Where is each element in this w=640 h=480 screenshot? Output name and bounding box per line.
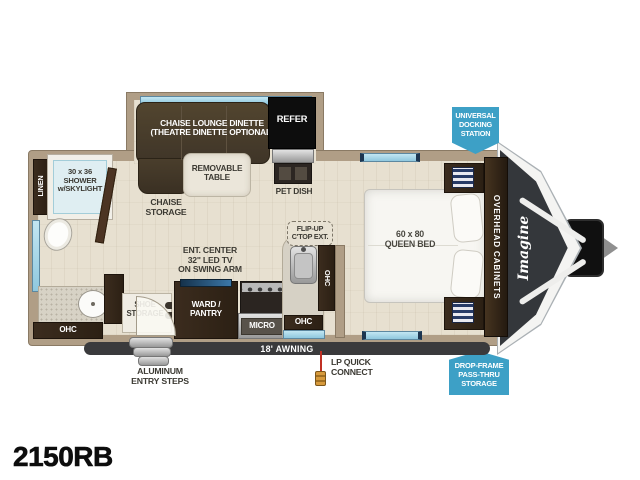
kitchen-ohc-vertical-wrap: OHC xyxy=(319,253,335,303)
ward-pantry-label: WARD / PANTRY xyxy=(174,300,238,319)
kitchen-window xyxy=(283,330,325,339)
bath-sink-drain xyxy=(91,302,95,306)
pillow-bottom xyxy=(450,249,485,300)
nightstand-top-decor xyxy=(452,167,474,188)
ent-center-label: ENT. CENTER 32" LED TV ON SWING ARM xyxy=(166,246,254,275)
removable-table-label: REMOVABLE TABLE xyxy=(183,164,251,183)
docking-station-label: UNIVERSAL DOCKING STATION xyxy=(452,112,499,138)
tv-on-swing-arm xyxy=(180,279,232,287)
range-knob-strip xyxy=(242,283,282,292)
overhead-cabinets-label: OVERHEAD CABINETS xyxy=(491,195,500,300)
pet-dish-label: PET DISH xyxy=(266,187,322,196)
nightstand-bottom-decor xyxy=(452,302,474,323)
shoe-latch-top xyxy=(165,302,172,309)
pet-dish-bowl-left xyxy=(279,167,291,180)
lp-quick-connect-label: LP QUICK CONNECT xyxy=(331,358,395,377)
kitchen-faucet xyxy=(301,247,306,252)
bedroom-partition-wall xyxy=(335,245,345,338)
bath-ohc-label: OHC xyxy=(33,326,103,335)
kitchen-ohc-vertical-label: OHC xyxy=(323,270,332,286)
micro-label: MICRO xyxy=(241,322,283,331)
lp-connect-icon xyxy=(315,371,326,386)
linen-label-wrap: LINEN xyxy=(33,165,49,207)
bedroom-window-top xyxy=(360,153,420,162)
kitchen-ohc-label: OHC xyxy=(284,318,323,327)
pet-dish-bowl-right xyxy=(295,167,307,180)
brand-logo: Imagine xyxy=(516,200,536,296)
entry-steps-label: ALUMINUM ENTRY STEPS xyxy=(114,367,206,386)
overhead-cabinets-wrap: OVERHEAD CABINETS xyxy=(488,167,504,327)
kitchen-sink-basin xyxy=(294,253,313,279)
chaise-storage-label: CHAISE STORAGE xyxy=(130,198,202,217)
dropframe-storage-label: DROP-FRAME PASS-THRU STORAGE xyxy=(449,361,509,388)
bathroom-window xyxy=(32,220,40,292)
pillow-top xyxy=(450,193,485,244)
floorplan-canvas: Imagine LINEN 30 x 36 SHOWER w/SKYLIGHT … xyxy=(0,0,640,480)
flip-up-label: FLIP-UP C'TOP EXT. xyxy=(287,225,333,241)
queen-bed-label: 60 x 80 QUEEN BED xyxy=(370,230,450,250)
bath-wardrobe xyxy=(104,274,124,324)
bedroom-window-bottom xyxy=(362,331,422,340)
refer-label: REFER xyxy=(268,114,316,124)
refer-base-trim xyxy=(272,149,314,163)
linen-label: LINEN xyxy=(37,176,45,197)
shower-label: 30 x 36 SHOWER w/SKYLIGHT xyxy=(50,168,110,194)
entry-step-3 xyxy=(138,356,169,366)
model-number: 2150RB xyxy=(13,441,113,473)
lp-connect-line xyxy=(320,351,322,372)
